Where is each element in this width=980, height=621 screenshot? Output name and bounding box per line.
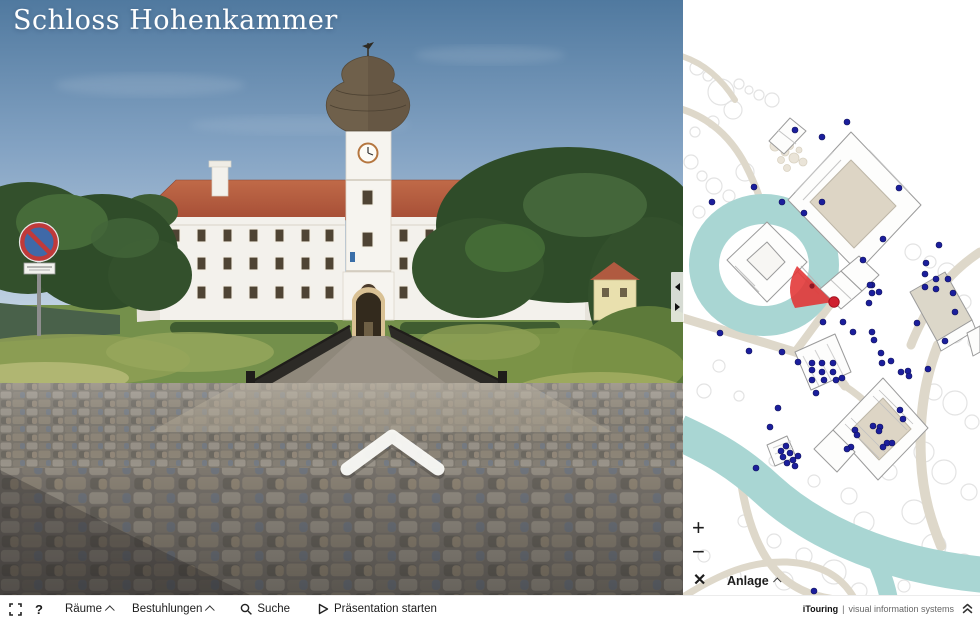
poi-dot[interactable] (880, 444, 886, 450)
poi-dot[interactable] (753, 465, 759, 471)
poi-dot[interactable] (876, 428, 882, 434)
poi-dot[interactable] (866, 300, 872, 306)
poi-dot[interactable] (821, 377, 827, 383)
poi-dot[interactable] (844, 446, 850, 452)
chevron-double-up-icon (962, 602, 973, 614)
poi-dot[interactable] (888, 358, 894, 364)
itouring-brand: iTouring | visual information systems (803, 596, 954, 621)
map-layer-toggle[interactable]: Anlage (727, 575, 781, 588)
poi-dot[interactable] (801, 210, 807, 216)
map-close-button[interactable]: ✕ (693, 573, 706, 589)
poi-dot[interactable] (933, 276, 939, 282)
poi-dot[interactable] (717, 330, 723, 336)
poi-dot[interactable] (787, 450, 793, 456)
virtual-tour-app: Schloss Hohenkammer (0, 0, 980, 621)
poi-dot[interactable] (897, 407, 903, 413)
panorama-viewport[interactable] (0, 0, 683, 595)
map-zoom-in-button[interactable]: + (692, 517, 705, 539)
poi-dot[interactable] (870, 423, 876, 429)
poi-dot[interactable] (900, 416, 906, 422)
poi-dot[interactable] (809, 360, 815, 366)
poi-dot[interactable] (819, 369, 825, 375)
poi-dot[interactable] (779, 199, 785, 205)
poi-dot[interactable] (844, 119, 850, 125)
poi-dot[interactable] (945, 276, 951, 282)
bottom-toolbar: ? Räume Bestuhlungen Suche Präsentation … (0, 595, 980, 621)
poi-dot[interactable] (779, 349, 785, 355)
search-button[interactable]: Suche (240, 603, 290, 615)
poi-dot[interactable] (820, 319, 826, 325)
poi-dot[interactable] (790, 457, 796, 463)
poi-dot[interactable] (833, 377, 839, 383)
poi-dot[interactable] (775, 405, 781, 411)
poi-dot[interactable] (896, 185, 902, 191)
chevron-up-icon (105, 605, 115, 615)
poi-dot[interactable] (830, 369, 836, 375)
poi-dot[interactable] (778, 448, 784, 454)
poi-dot[interactable] (933, 286, 939, 292)
poi-dot[interactable] (819, 199, 825, 205)
presentation-label: Präsentation starten (334, 603, 437, 615)
poi-dot[interactable] (889, 440, 895, 446)
arrow-left-icon (675, 283, 680, 291)
brand-tagline: visual information systems (848, 604, 954, 614)
poi-dot[interactable] (792, 463, 798, 469)
search-icon (240, 603, 252, 615)
map-layer-label: Anlage (727, 575, 769, 588)
poi-dot[interactable] (876, 289, 882, 295)
poi-dot[interactable] (709, 199, 715, 205)
poi-dot[interactable] (811, 588, 817, 594)
poi-dot[interactable] (751, 184, 757, 190)
poi-dot[interactable] (854, 432, 860, 438)
poi-dot[interactable] (869, 290, 875, 296)
poi-dot[interactable] (839, 375, 845, 381)
poi-dot[interactable] (923, 260, 929, 266)
poi-dot[interactable] (867, 282, 873, 288)
search-label: Suche (257, 603, 290, 615)
map-zoom-out-button[interactable]: − (692, 541, 705, 563)
poi-dot[interactable] (795, 453, 801, 459)
poi-dot[interactable] (936, 242, 942, 248)
play-icon (318, 603, 329, 615)
poi-dot[interactable] (783, 443, 789, 449)
rooms-menu-button[interactable]: Räume (65, 603, 114, 615)
poi-dot[interactable] (792, 127, 798, 133)
arrow-right-icon (675, 303, 680, 311)
poi-dot[interactable] (795, 359, 801, 365)
poi-dot[interactable] (906, 373, 912, 379)
poi-dot[interactable] (922, 284, 928, 290)
poi-dot[interactable] (869, 329, 875, 335)
page-title: Schloss Hohenkammer (13, 5, 338, 36)
toolbar-collapse-button[interactable] (962, 602, 973, 617)
poi-dot[interactable] (878, 350, 884, 356)
poi-dot[interactable] (813, 390, 819, 396)
poi-dot[interactable] (880, 236, 886, 242)
poi-dot[interactable] (840, 319, 846, 325)
help-button[interactable]: ? (35, 602, 43, 617)
poi-dot[interactable] (922, 271, 928, 277)
fullscreen-icon (9, 603, 22, 616)
seating-menu-button[interactable]: Bestuhlungen (132, 603, 214, 615)
poi-dot[interactable] (830, 360, 836, 366)
poi-dot[interactable] (809, 367, 815, 373)
poi-dot[interactable] (952, 309, 958, 315)
start-presentation-button[interactable]: Präsentation starten (318, 603, 437, 615)
site-map[interactable] (683, 0, 980, 595)
poi-dot[interactable] (809, 377, 815, 383)
map-collapse-tab[interactable] (671, 272, 684, 322)
poi-dot[interactable] (914, 320, 920, 326)
poi-dot[interactable] (850, 329, 856, 335)
poi-dot[interactable] (950, 290, 956, 296)
poi-dot[interactable] (942, 338, 948, 344)
chevron-up-icon (205, 605, 215, 615)
chevron-up-icon (773, 578, 781, 586)
fullscreen-button[interactable] (9, 603, 22, 616)
brand-separator: | (842, 604, 844, 614)
poi-dot[interactable] (879, 360, 885, 366)
cobblestone-plaza (0, 383, 683, 595)
poi-dot[interactable] (746, 348, 752, 354)
poi-dot[interactable] (819, 134, 825, 140)
poi-dot[interactable] (925, 366, 931, 372)
rooms-label: Räume (65, 603, 102, 615)
poi-dot[interactable] (767, 424, 773, 430)
poi-dot[interactable] (780, 454, 786, 460)
poi-dot[interactable] (871, 337, 877, 343)
brand-name: iTouring (803, 604, 838, 614)
poi-dot[interactable] (819, 360, 825, 366)
seating-label: Bestuhlungen (132, 603, 202, 615)
poi-dot[interactable] (784, 460, 790, 466)
poi-dot[interactable] (860, 257, 866, 263)
poi-dot[interactable] (898, 369, 904, 375)
clock-tower (343, 130, 394, 340)
position-dot (829, 297, 839, 307)
